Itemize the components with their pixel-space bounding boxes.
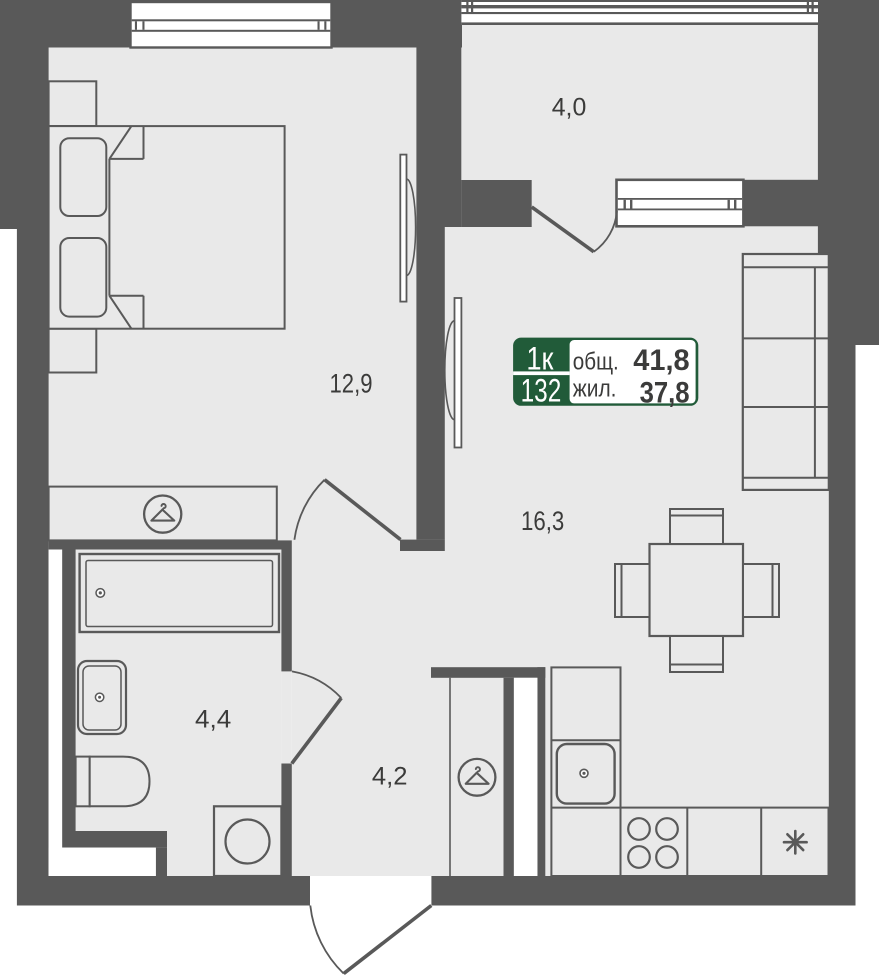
svg-text:132: 132 bbox=[521, 372, 562, 408]
svg-text:4,0: 4,0 bbox=[552, 94, 587, 122]
svg-text:общ.: общ. bbox=[573, 349, 619, 376]
svg-text:жил.: жил. bbox=[573, 375, 617, 402]
svg-text:41,8: 41,8 bbox=[633, 344, 689, 377]
svg-text:12,9: 12,9 bbox=[330, 368, 373, 398]
svg-text:4,4: 4,4 bbox=[195, 706, 231, 734]
svg-text:37,8: 37,8 bbox=[640, 376, 690, 409]
svg-text:16,3: 16,3 bbox=[521, 506, 564, 536]
svg-text:4,2: 4,2 bbox=[372, 762, 408, 790]
svg-text:1к: 1к bbox=[526, 341, 554, 377]
